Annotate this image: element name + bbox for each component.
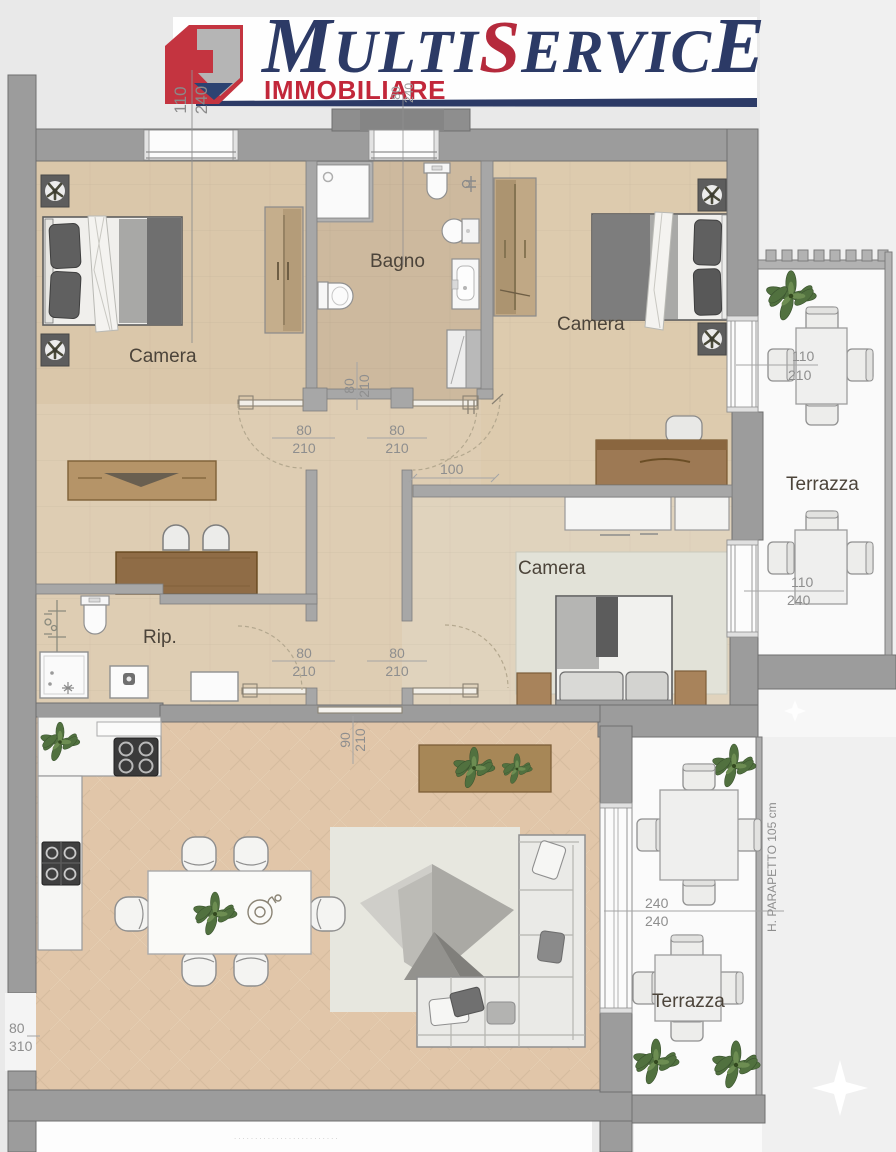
svg-text:90: 90 [337,732,353,748]
svg-text:210: 210 [788,367,812,383]
svg-text:80: 80 [341,378,357,394]
svg-text:80: 80 [296,645,312,661]
svg-text:Camera: Camera [129,346,197,367]
svg-text:310: 310 [9,1038,33,1054]
svg-text:110: 110 [791,574,814,590]
svg-text:80: 80 [296,422,312,438]
svg-text:Terrazza: Terrazza [652,991,725,1012]
svg-text:Camera: Camera [518,558,586,579]
svg-text:240: 240 [402,83,416,103]
svg-text:210: 210 [385,663,409,679]
svg-text:210: 210 [352,728,368,752]
svg-text:Bagno: Bagno [370,251,425,272]
svg-text:80: 80 [9,1020,25,1036]
svg-text:210: 210 [292,663,316,679]
svg-text:240: 240 [645,913,669,929]
svg-text:80: 80 [389,645,405,661]
svg-text:IMMOBILIARE: IMMOBILIARE [264,75,447,105]
svg-text:240: 240 [645,895,669,911]
svg-text:110: 110 [792,348,815,364]
svg-text:110: 110 [171,86,190,113]
svg-text:80: 80 [389,422,405,438]
svg-text:Terrazza: Terrazza [786,474,859,495]
svg-text:H. PARAPETTO 105 cm: H. PARAPETTO 105 cm [765,802,779,932]
svg-text:210: 210 [356,374,372,398]
svg-text:Camera: Camera [557,314,625,335]
svg-text:Rip.: Rip. [143,627,177,648]
svg-text:240: 240 [192,86,211,114]
svg-text:.........................: ......................... [234,1132,340,1141]
svg-text:80: 80 [389,86,403,100]
svg-text:240: 240 [787,592,811,608]
svg-text:100: 100 [440,461,464,477]
svg-text:210: 210 [385,440,409,456]
svg-text:210: 210 [292,440,316,456]
